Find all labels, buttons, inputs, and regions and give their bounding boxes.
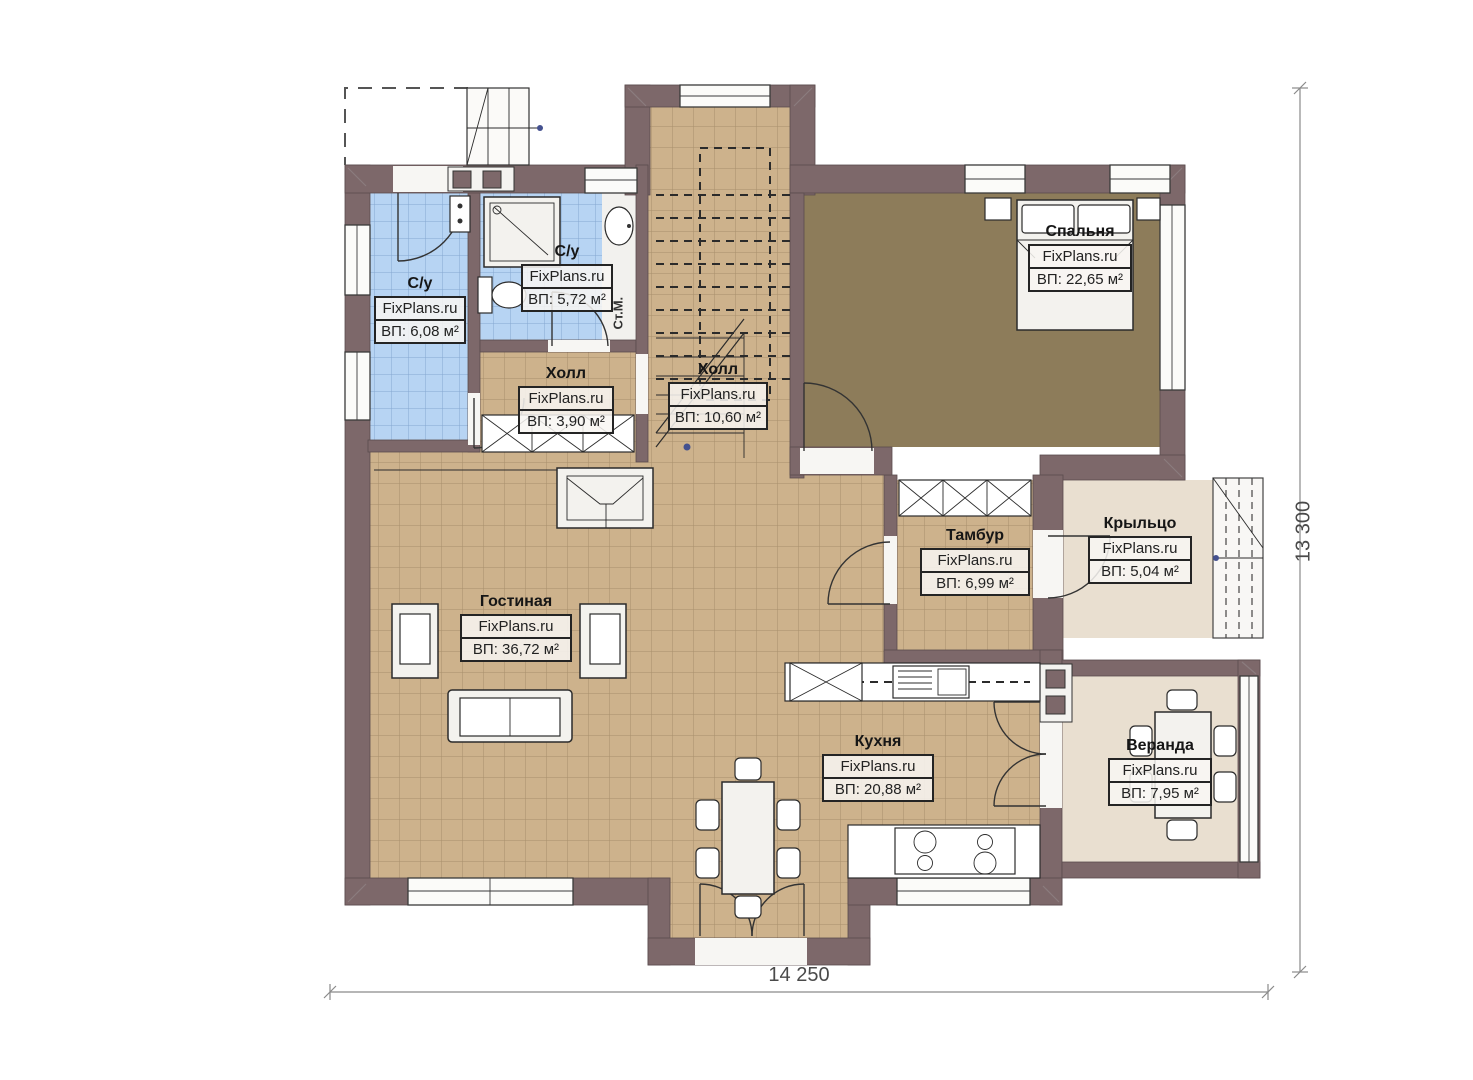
watermark-text: FixPlans.ru — [520, 388, 612, 411]
room-label-hall-stairs: Холл FixPlans.ru ВП: 10,60 м² — [668, 362, 768, 430]
watermark-box: FixPlans.ru ВП: 6,99 м² — [920, 548, 1030, 596]
room-name: С/у — [374, 276, 466, 293]
room-name: С/у — [521, 244, 613, 261]
room-label-porch: Крыльцо FixPlans.ru ВП: 5,04 м² — [1088, 516, 1192, 584]
watermark-box: FixPlans.ru ВП: 10,60 м² — [668, 382, 768, 430]
watermark-text: FixPlans.ru — [1030, 246, 1130, 269]
watermark-text: FixPlans.ru — [824, 756, 932, 779]
room-name: Гостиная — [460, 594, 572, 611]
watermark-box: FixPlans.ru ВП: 22,65 м² — [1028, 244, 1132, 292]
watermark-text: FixPlans.ru — [462, 616, 570, 639]
watermark-box: FixPlans.ru ВП: 5,04 м² — [1088, 536, 1192, 584]
room-label-hall-small: Холл FixPlans.ru ВП: 3,90 м² — [518, 366, 614, 434]
watermark-text: FixPlans.ru — [922, 550, 1028, 573]
room-label-bedroom: Спальня FixPlans.ru ВП: 22,65 м² — [1028, 224, 1132, 292]
porch-stairs — [1213, 478, 1263, 638]
floor-plan-drawing — [0, 0, 1473, 1080]
washing-machine-label: Ст.М. — [611, 286, 626, 330]
room-area: ВП: 20,88 м² — [824, 779, 932, 800]
room-name: Холл — [518, 366, 614, 383]
watermark-text: FixPlans.ru — [1090, 538, 1190, 561]
watermark-box: FixPlans.ru ВП: 5,72 м² — [521, 264, 613, 312]
watermark-box: FixPlans.ru ВП: 7,95 м² — [1108, 758, 1212, 806]
room-name: Тамбур — [920, 528, 1030, 545]
watermark-box: FixPlans.ru ВП: 36,72 м² — [460, 614, 572, 662]
watermark-text: FixPlans.ru — [523, 266, 611, 289]
room-name: Спальня — [1028, 224, 1132, 241]
room-name: Холл — [668, 362, 768, 379]
room-area: ВП: 5,04 м² — [1090, 561, 1190, 582]
watermark-box: FixPlans.ru ВП: 6,08 м² — [374, 296, 466, 344]
watermark-text: FixPlans.ru — [1110, 760, 1210, 783]
room-name: Крыльцо — [1088, 516, 1192, 533]
room-area: ВП: 6,99 м² — [922, 573, 1028, 594]
room-area: ВП: 5,72 м² — [523, 289, 611, 310]
entry-steps-top — [345, 88, 543, 165]
dimension-width-label: 14 250 — [739, 964, 859, 987]
room-name: Кухня — [822, 734, 934, 751]
floor-plan-page: С/у FixPlans.ru ВП: 6,08 м² С/у FixPlans… — [0, 0, 1473, 1080]
watermark-text: FixPlans.ru — [376, 298, 464, 321]
room-label-bath-left: С/у FixPlans.ru ВП: 6,08 м² — [374, 276, 466, 344]
watermark-text: FixPlans.ru — [670, 384, 766, 407]
room-area: ВП: 7,95 м² — [1110, 783, 1210, 804]
watermark-box: FixPlans.ru ВП: 3,90 м² — [518, 386, 614, 434]
watermark-box: FixPlans.ru ВП: 20,88 м² — [822, 754, 934, 802]
room-label-tambour: Тамбур FixPlans.ru ВП: 6,99 м² — [920, 528, 1030, 596]
room-label-kitchen: Кухня FixPlans.ru ВП: 20,88 м² — [822, 734, 934, 802]
room-area: ВП: 22,65 м² — [1030, 269, 1130, 290]
dimension-height-label: 13 300 — [1293, 472, 1316, 592]
room-area: ВП: 6,08 м² — [376, 321, 464, 342]
room-area: ВП: 36,72 м² — [462, 639, 570, 660]
room-label-living: Гостиная FixPlans.ru ВП: 36,72 м² — [460, 594, 572, 662]
room-label-veranda: Веранда FixPlans.ru ВП: 7,95 м² — [1108, 738, 1212, 806]
room-name: Веранда — [1108, 738, 1212, 755]
room-label-bath-right: С/у FixPlans.ru ВП: 5,72 м² — [521, 244, 613, 312]
room-area: ВП: 10,60 м² — [670, 407, 766, 428]
room-area: ВП: 3,90 м² — [520, 411, 612, 432]
